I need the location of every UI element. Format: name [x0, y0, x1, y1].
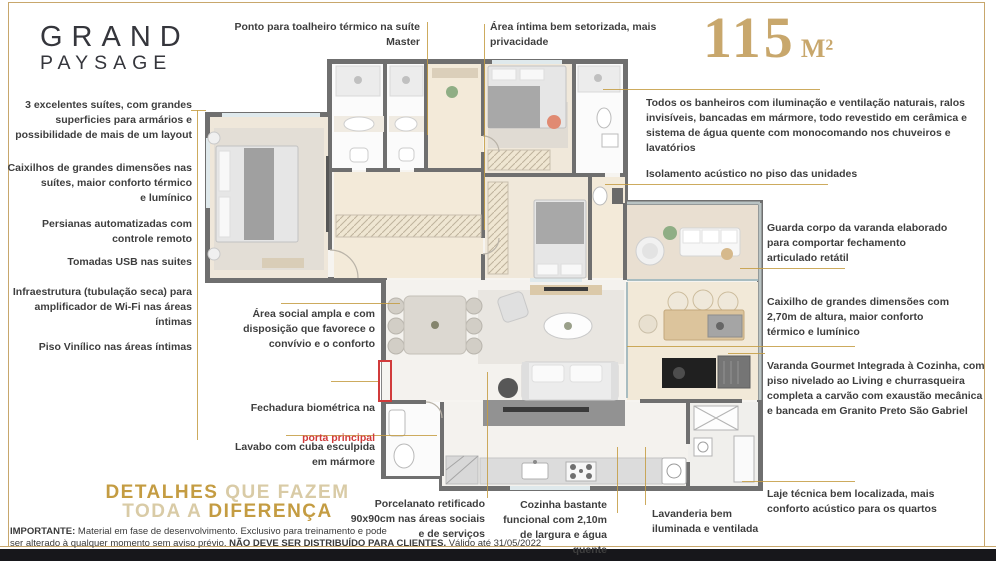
cushion-icon: [721, 230, 737, 243]
burner-icon: [586, 473, 592, 479]
note-toalheiro: Ponto para toalheiro térmico na suíte Ma…: [180, 20, 420, 50]
burner-icon: [570, 464, 576, 470]
chair-icon: [388, 298, 404, 314]
note-caixilho: Caixilho de grandes dimensões com 2,70m …: [767, 295, 982, 340]
connector-guarda-corpo: [740, 268, 845, 269]
window-icon: [206, 138, 210, 208]
shower-head-icon: [402, 76, 410, 84]
note-lavanderia: Lavanderia bem iluminada e ventilada: [652, 507, 822, 537]
brand-line1: GRAND: [40, 22, 190, 52]
window-icon: [222, 113, 320, 117]
connector-left-rail-tick: [191, 110, 206, 111]
brand-logo: GRAND PAYSAGE: [40, 22, 190, 74]
pouf-icon: [547, 115, 561, 129]
pillow-icon: [492, 69, 516, 80]
blanket-icon: [244, 148, 274, 240]
sink-icon: [389, 410, 405, 436]
disclaimer-bold: NÃO DEVE SER DISTRIBUÍDO PARA CLIENTES.: [229, 538, 446, 549]
main-door-highlight: [378, 360, 392, 402]
cushion-icon: [683, 230, 700, 243]
burner-icon: [586, 464, 592, 470]
nightstand-icon: [208, 132, 220, 144]
stool-icon: [718, 292, 738, 312]
note-tomadas-usb: Tomadas USB nas suites: [0, 255, 192, 270]
chair-icon: [639, 315, 657, 333]
tv-icon: [503, 407, 589, 412]
nightstand-icon: [208, 248, 220, 260]
note-area-social: Área social ampla e com disposição que f…: [205, 307, 375, 352]
window-icon: [510, 486, 590, 490]
wardrobe-icon: [336, 215, 481, 237]
note-fechadura: Fechadura biométrica na porta principal: [205, 386, 375, 446]
cushion-icon: [570, 365, 602, 382]
wardrobe-icon: [488, 150, 550, 170]
frame-top: [8, 2, 985, 3]
toilet-icon: [350, 148, 368, 162]
note-lavabo: Lavabo com cuba esculpida em mármore: [205, 440, 375, 470]
connector-caixilho: [627, 346, 855, 347]
disclaimer-line2: ser alterado à qualquer momento sem avis…: [10, 538, 570, 550]
disclaimer-text: Material em fase de desenvolvimento. Exc…: [75, 526, 387, 537]
centerpiece-icon: [564, 322, 572, 330]
note-caixilhos-suites: Caixilhos de grandes dimensões nas suíte…: [0, 161, 192, 206]
connector-area-intima: [484, 24, 485, 230]
tagline-strong: DETALHES: [105, 482, 218, 503]
tank-sink-icon: [694, 438, 712, 456]
sink-icon: [522, 463, 548, 479]
shower-head-icon: [594, 74, 602, 82]
connector-fechadura: [331, 381, 378, 382]
appliance-icon: [708, 315, 742, 337]
side-table-icon: [498, 378, 518, 398]
shower-head-icon: [354, 76, 362, 84]
tagline-line2: TODA A DIFERENÇA: [95, 502, 360, 521]
cushion-icon: [702, 230, 719, 243]
tagline: DETALHES QUE FAZEM TODA A DIFERENÇA: [95, 483, 360, 521]
plant-icon: [663, 226, 677, 240]
round-chair-icon: [642, 243, 658, 259]
pillow-icon: [219, 151, 230, 191]
tagline-light: TODA A: [122, 501, 208, 522]
disclaimer: IMPORTANTE: Material em fase de desenvol…: [10, 526, 570, 549]
armrest-icon: [611, 362, 618, 400]
disclaimer-text: Válido até 31/05/2022: [446, 538, 541, 549]
frame-left: [8, 2, 9, 546]
tv-icon: [544, 287, 588, 291]
sink-icon: [344, 117, 374, 131]
stool-icon: [668, 292, 688, 312]
blanket-icon: [488, 86, 540, 128]
connector-cozinha: [617, 447, 618, 513]
stool-icon: [693, 290, 713, 310]
note-banheiros: Todos os banheiros com iluminação e vent…: [646, 96, 981, 156]
blanket-icon: [536, 202, 584, 244]
suite2-furniture: [488, 66, 568, 148]
chair-icon: [466, 338, 482, 354]
disclaimer-line1: IMPORTANTE: Material em fase de desenvol…: [10, 526, 570, 538]
toilet-icon: [399, 148, 414, 161]
note-varanda-gourmet: Varanda Gourmet Integrada à Cozinha, com…: [767, 359, 987, 419]
connector-varanda-gourmet: [728, 353, 765, 354]
tagline-light: QUE FAZEM: [218, 482, 349, 503]
tagline-strong: DIFERENÇA: [208, 501, 332, 522]
connector-laje: [742, 481, 855, 482]
tagline-line1: DETALHES QUE FAZEM: [95, 483, 360, 502]
chair-icon: [388, 318, 404, 334]
tv-icon: [326, 156, 329, 232]
armrest-icon: [522, 362, 529, 400]
window-icon: [492, 60, 562, 64]
kitchen-fixtures: [446, 456, 686, 484]
brand-line2: PAYSAGE: [40, 52, 190, 74]
pillow-icon: [520, 69, 544, 80]
connector-isolamento: [605, 184, 828, 185]
suite3-furniture: [534, 200, 586, 278]
toilet-icon: [394, 444, 414, 468]
note-suites: 3 excelentes suítes, com grandes superfi…: [0, 98, 192, 143]
burner-icon: [579, 469, 583, 473]
pillow-icon: [537, 264, 558, 275]
cushion-icon: [532, 365, 564, 382]
burner-icon: [570, 473, 576, 479]
plant-icon: [446, 86, 458, 98]
connector-left-rail: [197, 110, 198, 440]
connector-area-social: [281, 303, 400, 304]
bench-icon: [262, 258, 304, 268]
note-fechadura-prefix: Fechadura biométrica na: [251, 402, 375, 414]
pillow-icon: [219, 197, 230, 237]
toilet-icon: [597, 108, 611, 128]
area-unit: M²: [801, 34, 833, 63]
chair-icon: [466, 318, 482, 334]
page: GRAND PAYSAGE 115M²: [0, 0, 996, 561]
note-area-intima: Área íntima bem setorizada, mais privaci…: [490, 20, 700, 50]
disclaimer-text: ser alterado à qualquer momento sem avis…: [10, 538, 229, 549]
washer-icon: [662, 458, 686, 484]
wardrobe-icon: [488, 182, 508, 274]
connector-porcelanato: [487, 372, 488, 498]
connector-banheiros: [603, 89, 820, 90]
connector-lavanderia: [645, 447, 646, 505]
appliance-icon: [716, 322, 724, 330]
faucet-icon: [533, 460, 537, 464]
sink-icon: [602, 134, 618, 147]
disclaimer-bold: IMPORTANTE:: [10, 526, 75, 537]
master-suite-furniture: [208, 128, 329, 270]
note-wifi: Infraestrutura (tubulação seca) para amp…: [0, 285, 192, 330]
note-persianas: Persianas automatizadas com controle rem…: [0, 217, 192, 247]
room-hall-top: [428, 64, 483, 170]
cabinet-icon: [734, 436, 754, 482]
note-piso-vinilico: Piso Vinílico nas áreas íntimas: [0, 340, 192, 355]
toilet-icon: [593, 187, 607, 205]
cabinet-icon: [612, 188, 623, 204]
chair-icon: [388, 338, 404, 354]
console-icon: [432, 68, 478, 78]
sink-icon: [395, 117, 417, 131]
grill-hood-icon: [718, 356, 750, 388]
centerpiece-icon: [431, 321, 439, 329]
pillow-icon: [561, 264, 582, 275]
side-table-icon: [721, 248, 733, 260]
window-icon: [530, 278, 582, 282]
chair-icon: [466, 298, 482, 314]
connector-toalheiro: [427, 22, 428, 135]
note-isolamento: Isolamento acústico no piso das unidades: [646, 167, 981, 182]
frame-right: [984, 2, 985, 546]
media-wall: [483, 400, 625, 426]
note-guarda-corpo: Guarda corpo da varanda elaborado para c…: [767, 221, 982, 266]
grill-icon: [662, 358, 716, 388]
grill-icon: [673, 367, 685, 379]
